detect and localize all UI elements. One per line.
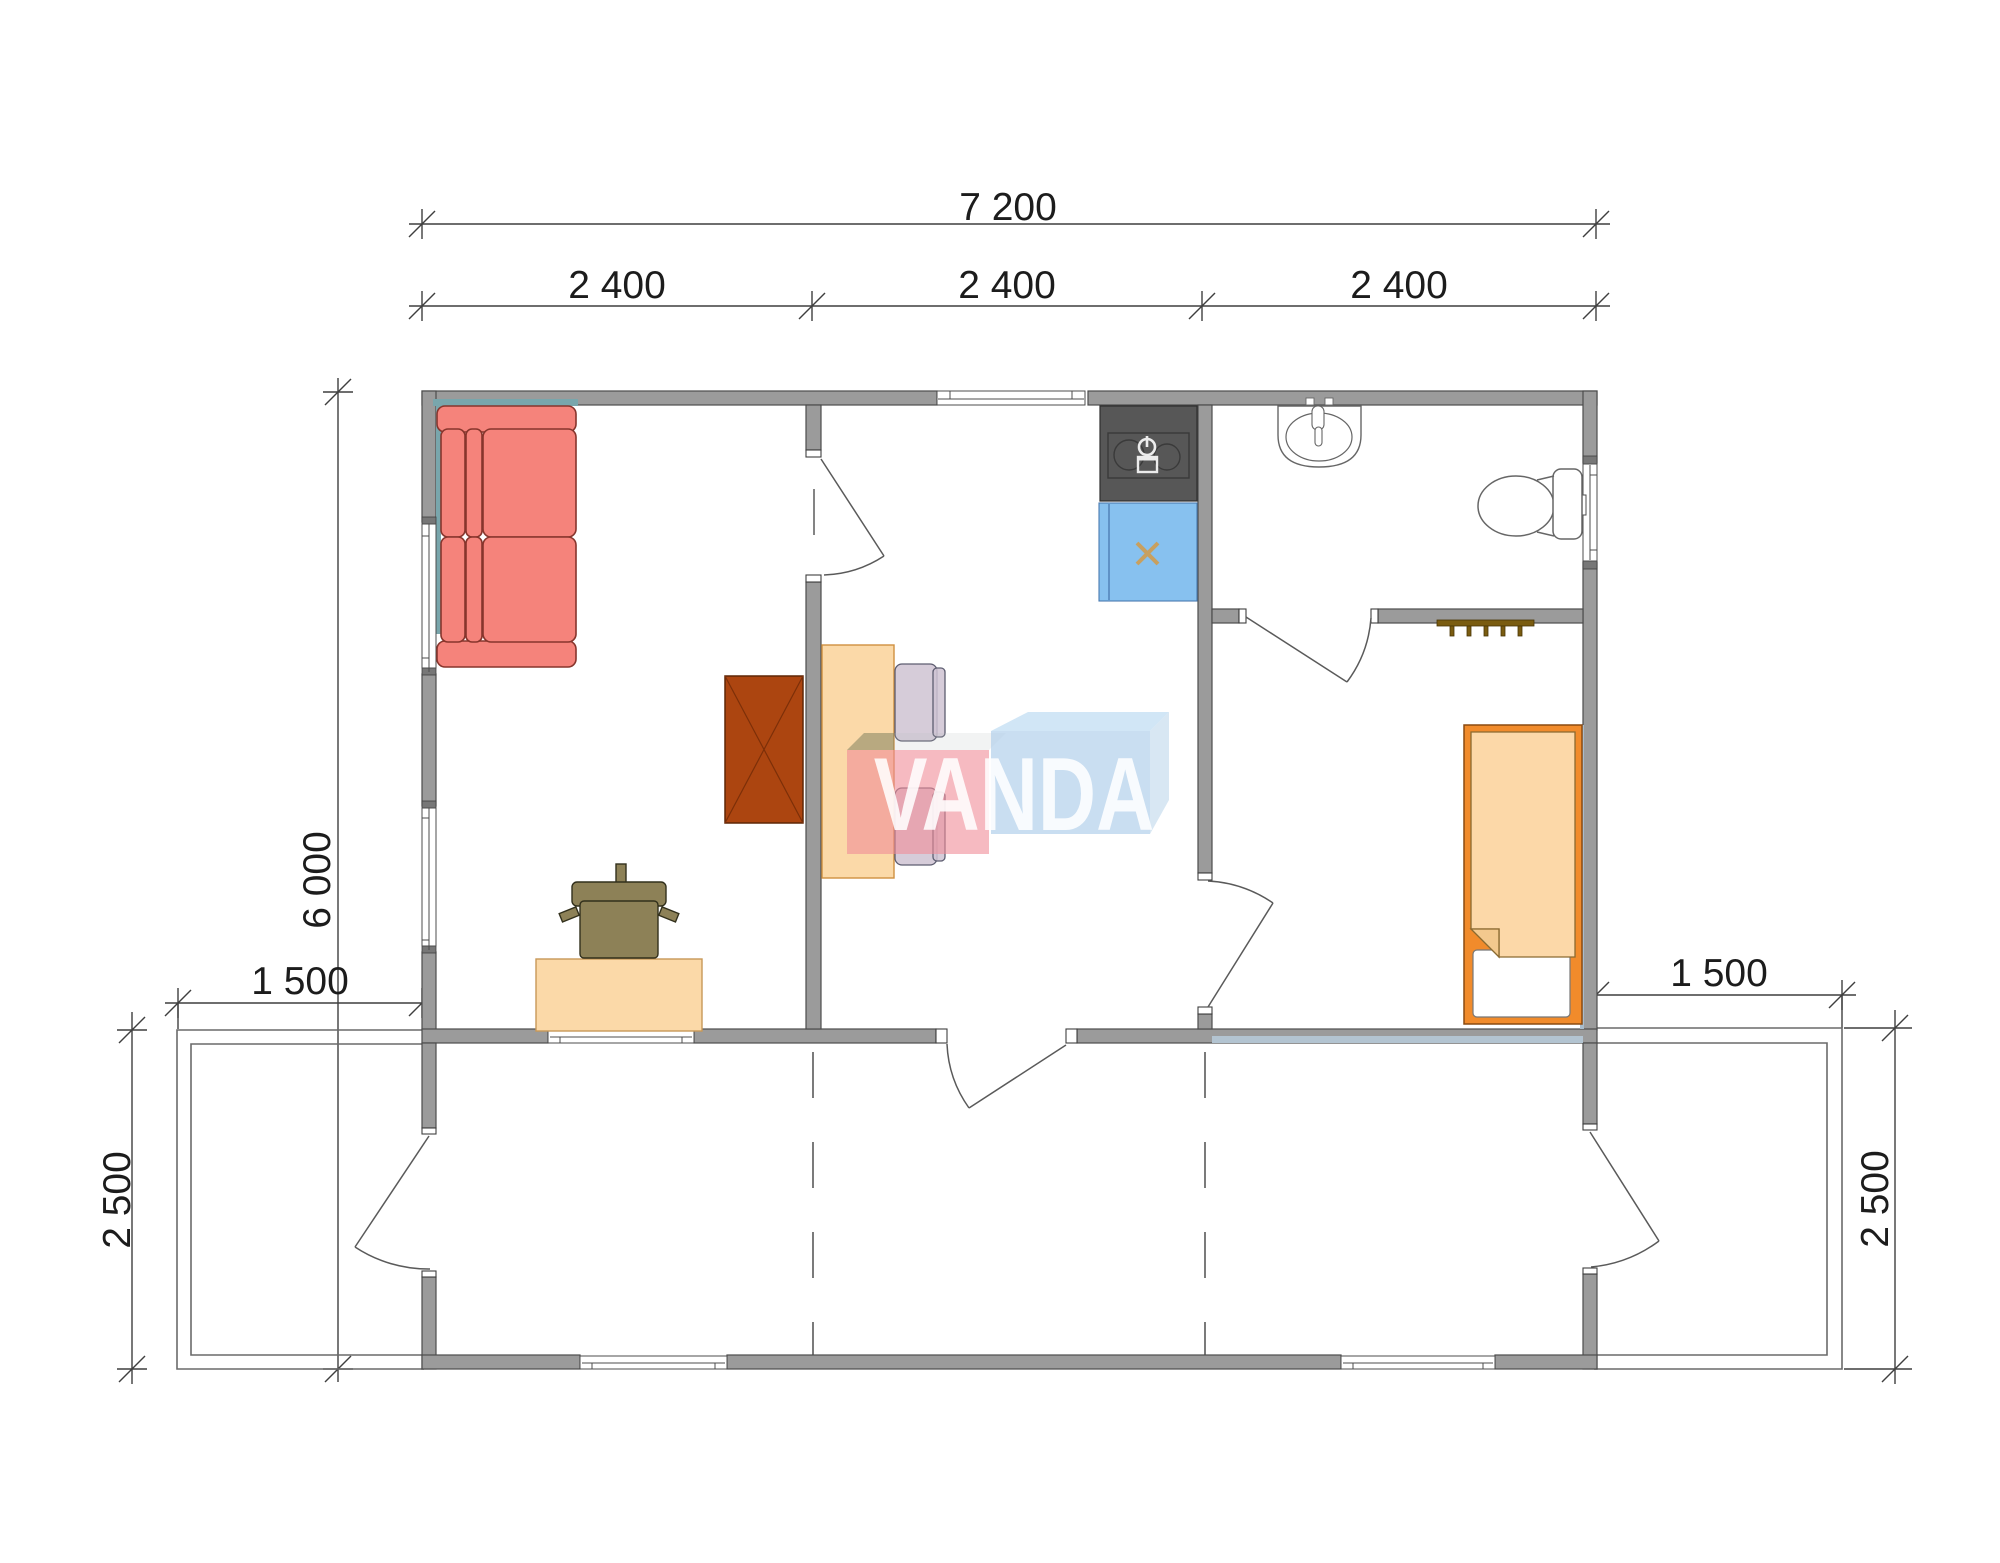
svg-text:VANDA: VANDA	[874, 736, 1155, 852]
svg-text:2 400: 2 400	[1350, 264, 1448, 307]
svg-text:6 000: 6 000	[296, 831, 339, 929]
svg-text:7 200: 7 200	[959, 186, 1057, 229]
svg-text:2 400: 2 400	[568, 264, 666, 307]
svg-text:2 400: 2 400	[958, 264, 1056, 307]
svg-text:1 500: 1 500	[251, 960, 349, 1003]
svg-text:1 500: 1 500	[1670, 952, 1768, 995]
svg-text:2 500: 2 500	[1854, 1150, 1897, 1248]
svg-text:2 500: 2 500	[96, 1151, 139, 1249]
